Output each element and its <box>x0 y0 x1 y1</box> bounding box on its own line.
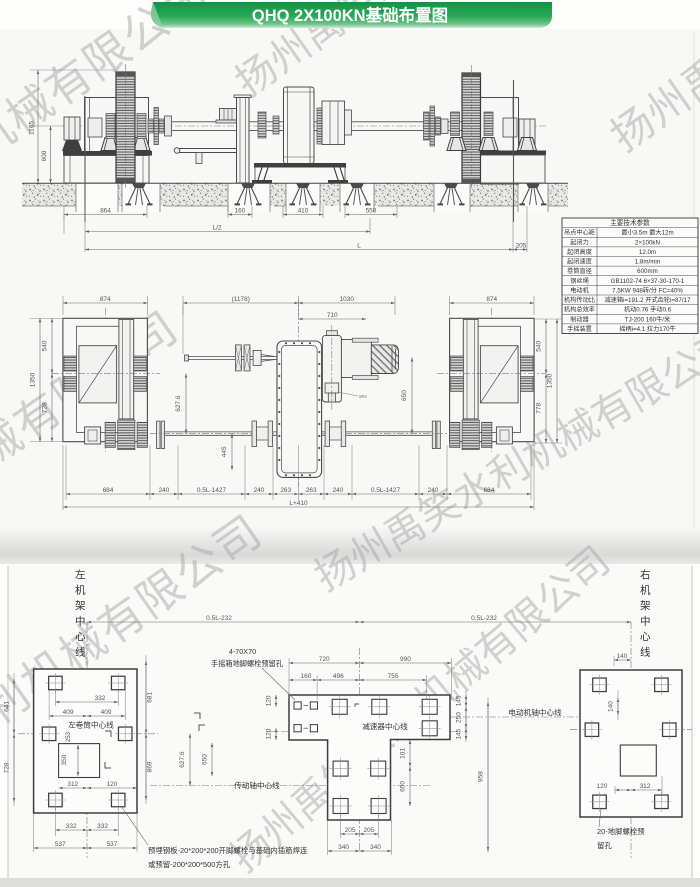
svg-text:160: 160 <box>235 207 246 214</box>
svg-text:205: 205 <box>516 242 527 249</box>
svg-text:0.5L-232: 0.5L-232 <box>471 615 497 622</box>
svg-text:958: 958 <box>478 771 485 782</box>
svg-text:253: 253 <box>66 731 72 742</box>
svg-text:600: 600 <box>41 150 48 161</box>
svg-text:机构传动比: 机构传动比 <box>564 296 595 304</box>
svg-text:874: 874 <box>486 296 497 303</box>
svg-text:728: 728 <box>4 762 11 773</box>
svg-text:1.8m/min: 1.8m/min <box>635 259 661 266</box>
svg-text:550: 550 <box>366 207 377 214</box>
svg-text:240: 240 <box>428 487 439 494</box>
svg-text:左卷筒中心线: 左卷筒中心线 <box>68 720 114 730</box>
svg-text:627.6: 627.6 <box>179 751 186 768</box>
svg-text:332: 332 <box>66 823 77 830</box>
svg-text:312: 312 <box>67 781 78 788</box>
svg-text:TJ-200 160牛/米: TJ-200 160牛/米 <box>625 315 670 323</box>
svg-text:240: 240 <box>159 487 170 494</box>
svg-text:263: 263 <box>306 487 317 494</box>
svg-text:钢丝绳: 钢丝绳 <box>570 277 589 285</box>
svg-text:145: 145 <box>456 728 463 739</box>
svg-text:710: 710 <box>327 312 338 319</box>
svg-text:869: 869 <box>147 761 154 772</box>
svg-text:864: 864 <box>100 207 111 214</box>
svg-text:205: 205 <box>345 827 356 834</box>
svg-text:主要技术参数: 主要技术参数 <box>610 218 650 227</box>
svg-text:起闭力: 起闭力 <box>570 238 589 246</box>
svg-text:预埋钢板-20*200*200开脚螺栓与基础内插筋焊连: 预埋钢板-20*200*200开脚螺栓与基础内插筋焊连 <box>148 846 308 855</box>
svg-text:537: 537 <box>55 841 66 848</box>
svg-text:537: 537 <box>107 841 118 848</box>
svg-text:机构总效率: 机构总效率 <box>564 306 595 314</box>
svg-text:332: 332 <box>97 823 108 830</box>
svg-text:7.5KW 948转/分 FC=40%: 7.5KW 948转/分 FC=40% <box>612 286 683 294</box>
svg-text:990: 990 <box>400 656 411 663</box>
svg-text:1030: 1030 <box>340 296 355 303</box>
svg-text:机动0.76 手动0.6: 机动0.76 手动0.6 <box>624 306 672 314</box>
svg-text:145: 145 <box>456 695 463 706</box>
svg-text:4-70X70: 4-70X70 <box>229 647 256 656</box>
svg-text:最小3.5m 最大12m: 最小3.5m 最大12m <box>621 229 673 237</box>
svg-text:755: 755 <box>388 673 399 680</box>
svg-text:350: 350 <box>61 754 68 765</box>
svg-text:0.5L-1427: 0.5L-1427 <box>371 487 401 494</box>
svg-text:摇柄i=4.1 拉力170牛: 摇柄i=4.1 拉力170牛 <box>619 325 676 333</box>
svg-text:1350: 1350 <box>547 373 554 388</box>
svg-text:120: 120 <box>266 728 273 739</box>
svg-text:650: 650 <box>400 781 407 792</box>
svg-text:340: 340 <box>370 844 381 851</box>
svg-text:160: 160 <box>301 673 312 680</box>
svg-text:681: 681 <box>147 692 154 703</box>
svg-text:1350: 1350 <box>30 372 37 387</box>
svg-text:留孔: 留孔 <box>597 841 612 850</box>
svg-text:L/2: L/2 <box>212 224 221 231</box>
svg-text:电动机: 电动机 <box>570 286 589 294</box>
svg-text:240: 240 <box>333 487 344 494</box>
svg-text:120: 120 <box>107 781 118 788</box>
svg-text:L: L <box>357 242 361 249</box>
svg-text:手摇装置: 手摇装置 <box>567 325 592 333</box>
svg-text:起闭速度: 起闭速度 <box>567 258 592 266</box>
svg-text:409: 409 <box>101 709 112 716</box>
svg-text:684: 684 <box>484 487 495 494</box>
svg-text:20-地脚螺栓预: 20-地脚螺栓预 <box>597 827 645 836</box>
svg-text:409: 409 <box>63 709 74 716</box>
svg-text:332: 332 <box>95 695 106 702</box>
svg-text:吊点中心距: 吊点中心距 <box>564 229 595 237</box>
svg-text:778: 778 <box>536 402 543 413</box>
svg-text:2×100kN: 2×100kN <box>635 239 660 246</box>
svg-text:650: 650 <box>401 390 408 401</box>
svg-text:445: 445 <box>221 446 228 457</box>
svg-text:627.6: 627.6 <box>175 395 182 412</box>
svg-text:140: 140 <box>608 701 615 712</box>
svg-text:减速箱i=191.2 开式齿轮i=87/17: 减速箱i=191.2 开式齿轮i=87/17 <box>605 296 692 304</box>
svg-text:(1178): (1178) <box>232 296 250 303</box>
svg-text:312: 312 <box>640 783 651 790</box>
svg-text:制动器: 制动器 <box>570 315 589 323</box>
svg-text:728: 728 <box>42 402 49 413</box>
svg-text:684: 684 <box>103 487 114 494</box>
svg-text:起闭高度: 起闭高度 <box>567 248 592 256</box>
svg-text:205: 205 <box>364 827 375 834</box>
svg-text:减速器中心线: 减速器中心线 <box>362 721 408 731</box>
svg-text:120: 120 <box>597 783 608 790</box>
svg-text:263: 263 <box>280 487 291 494</box>
svg-text:650: 650 <box>202 754 209 765</box>
svg-text:0.5L-232: 0.5L-232 <box>206 615 232 622</box>
svg-text:手摇箱地脚螺栓预留孔: 手摇箱地脚螺栓预留孔 <box>211 659 283 668</box>
svg-text:传动轴中心线: 传动轴中心线 <box>234 780 280 790</box>
svg-text:120: 120 <box>266 695 273 706</box>
svg-text:540: 540 <box>42 340 49 351</box>
svg-text:GB1102-74 6×37-30-170-1: GB1102-74 6×37-30-170-1 <box>611 278 685 285</box>
svg-text:QHQ 2X100KN基础布置图: QHQ 2X100KN基础布置图 <box>252 5 448 25</box>
svg-text:卷筒直径: 卷筒直径 <box>567 267 592 275</box>
svg-text:或预留-200*200*500方孔: 或预留-200*200*500方孔 <box>148 860 231 869</box>
svg-text:600mm: 600mm <box>637 268 658 275</box>
svg-text:874: 874 <box>100 296 111 303</box>
svg-text:540: 540 <box>536 340 543 351</box>
svg-text:12.0m: 12.0m <box>639 249 656 256</box>
svg-text:电动机轴中心线: 电动机轴中心线 <box>508 707 562 717</box>
svg-text:720: 720 <box>319 656 330 663</box>
svg-text:641: 641 <box>4 701 11 712</box>
svg-text:1165: 1165 <box>29 121 36 135</box>
svg-text:0.5L-1427: 0.5L-1427 <box>197 487 227 494</box>
svg-text:340: 340 <box>338 844 349 851</box>
svg-text:240: 240 <box>254 487 265 494</box>
svg-text:140: 140 <box>617 653 628 660</box>
svg-text:250: 250 <box>456 712 463 723</box>
svg-text:L+410: L+410 <box>289 500 308 507</box>
svg-text:496: 496 <box>333 673 344 680</box>
svg-text:8#4: 8#4 <box>359 394 367 399</box>
svg-text:410: 410 <box>298 207 309 214</box>
svg-text:101: 101 <box>400 748 407 759</box>
